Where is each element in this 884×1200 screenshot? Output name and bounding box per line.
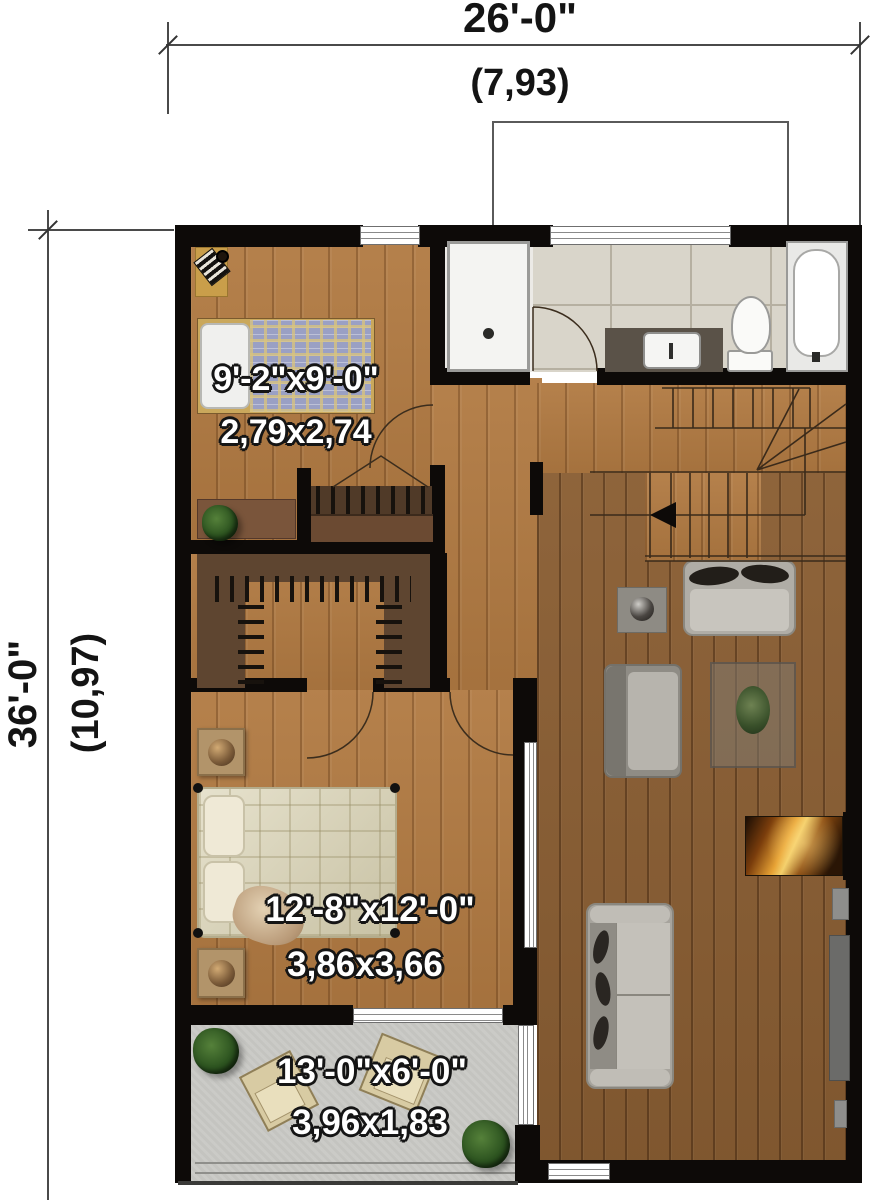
balcony-size-imperial: 13'-0"x6'-0" — [242, 1052, 502, 1092]
wall-walkin-right — [430, 553, 447, 692]
bed-2-pillow-top — [203, 795, 245, 857]
bathtub-basin — [793, 249, 840, 357]
wall-closet1-stub — [297, 468, 311, 544]
bedroom-2-patio-slider — [353, 1008, 503, 1023]
balcony-edge-line-2 — [195, 1172, 515, 1174]
media-shelf-lower — [834, 1100, 847, 1128]
walkin-hangers-top — [215, 576, 411, 602]
fireplace-glow — [745, 816, 843, 876]
sofa-seat-divider — [616, 994, 670, 996]
wall-top-a — [175, 225, 363, 247]
width-dimension-metric: (7,93) — [330, 62, 710, 105]
roof-outline-right — [787, 121, 789, 226]
media-shelf-upper — [832, 888, 849, 920]
wall-mid-c — [513, 678, 537, 692]
coffee-table-bowl — [736, 686, 770, 734]
nightstand-1-lamp — [208, 739, 235, 766]
bedroom-2-size-imperial: 12'-8"x12'-0" — [240, 890, 500, 930]
wall-living-left-stub — [530, 462, 543, 515]
nightstand-2-lamp — [208, 960, 235, 987]
wall-fireplace-surround — [843, 812, 862, 880]
armchair-back — [606, 666, 626, 776]
bedroom-1-size-imperial: 9'-2"x9'-0" — [166, 360, 426, 399]
bed-2-post-bl — [193, 928, 203, 938]
floor-plan: 26'-0" (7,93) 36'-0" (10,97) — [0, 0, 884, 1200]
shower-drain — [483, 328, 494, 339]
bathtub-faucet — [812, 352, 820, 362]
height-dimension-metric: (10,97) — [64, 618, 108, 768]
top-extension-left — [167, 22, 169, 114]
balcony-bottom-line — [178, 1181, 518, 1185]
left-dimension-line — [47, 210, 49, 1200]
bedroom2-living-window — [524, 742, 537, 948]
width-dimension-label: 26'-0" — [330, 0, 710, 42]
bedroom1-plant — [202, 505, 238, 541]
wall-balcony-top-a — [175, 1005, 353, 1025]
balcony-edge-line-1 — [195, 1162, 515, 1164]
loveseat-seat — [690, 589, 789, 631]
bedroom-1-window — [360, 226, 420, 245]
living-bottom-window — [548, 1163, 610, 1180]
shower — [447, 241, 530, 372]
armchair-seat — [628, 672, 678, 770]
vanity-faucet — [669, 343, 673, 359]
balcony-size-metric: 3,96x1,83 — [240, 1103, 500, 1143]
bed-2-post-tr — [390, 783, 400, 793]
closet1-hangers — [316, 486, 428, 516]
wall-balcony-top-b — [503, 1005, 537, 1025]
sofa-armrest-top — [590, 906, 670, 923]
top-dimension-line — [166, 44, 860, 46]
bed-2-post-tl — [193, 783, 203, 793]
bedroom-2-size-metric: 3,86x3,66 — [235, 945, 495, 985]
living-patio-door — [518, 1025, 534, 1125]
sofa-seat — [616, 923, 670, 1069]
height-dimension-label: 36'-0" — [1, 619, 45, 769]
tv-console — [829, 935, 850, 1081]
desk-chair-back — [216, 250, 229, 263]
closet1-shelf — [311, 514, 433, 542]
stair-landing-floor — [537, 383, 848, 473]
side-table-sphere — [630, 597, 654, 621]
roof-outline-top — [492, 121, 789, 123]
balcony-plant-1 — [193, 1028, 239, 1074]
walkin-hangers-right — [376, 600, 402, 684]
toilet-bowl — [731, 296, 771, 354]
wall-living-left-lower — [515, 1125, 540, 1165]
wall-bedroom1-right-upper — [430, 240, 445, 385]
roof-outline-left — [492, 121, 494, 226]
bathroom-window — [550, 226, 731, 245]
stair-lower-flight-floor — [645, 473, 761, 561]
bedroom-1-size-metric: 2,79x2,74 — [166, 413, 426, 452]
sofa-armrest-bottom — [590, 1069, 670, 1086]
walkin-hangers-left — [238, 600, 264, 684]
